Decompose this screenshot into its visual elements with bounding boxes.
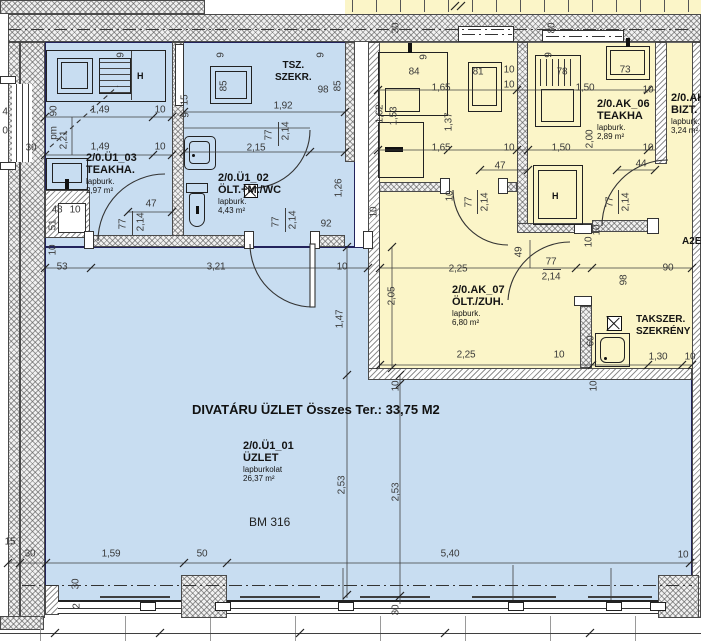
dim-label: 2,14 — [542, 272, 561, 283]
dim-label: 30 — [391, 23, 402, 34]
dim-label: 10 — [504, 80, 515, 91]
column-right — [658, 575, 699, 618]
wall-corner-piece — [45, 585, 59, 615]
dim-label: 10 — [70, 205, 81, 216]
dim-label: 10 — [48, 245, 59, 256]
fixture-tick — [408, 43, 412, 53]
dim-label: 60 — [586, 336, 597, 347]
h-mark: H — [552, 191, 559, 201]
door-jamb — [84, 231, 94, 249]
dim-label: 10 — [643, 143, 654, 154]
dim-label: 47 — [146, 199, 157, 210]
dim-label: 9 — [216, 52, 227, 57]
dim-label: 2,21 — [59, 131, 70, 150]
room-label-wc: 2/0.Ü1_02ÖLT.+M./WC lapburk.4,43 m² — [218, 172, 281, 215]
wall-top-left-strip — [0, 0, 205, 14]
dim-label: 10 — [504, 65, 515, 76]
wall-staff-mid — [517, 42, 528, 233]
dim-label: 50 — [197, 549, 208, 560]
fixture-tick — [626, 38, 630, 47]
blind-segment — [360, 596, 430, 598]
dim-label: 77 — [546, 257, 557, 268]
dim-label: 9 — [181, 112, 192, 117]
dim-label: 85 — [333, 81, 344, 92]
wall-bottom-left-sill — [0, 616, 44, 630]
door-jamb — [574, 224, 592, 234]
dim-label: 15 — [180, 95, 191, 106]
dim-label: 49 — [514, 247, 525, 258]
fraction-bar — [477, 190, 478, 214]
dim-label: 10 — [504, 143, 515, 154]
dim-label: 1,30 — [649, 352, 668, 363]
fraction-bar — [618, 190, 619, 214]
bm-label: BM 316 — [249, 515, 290, 529]
dim-label: 2,14 — [136, 213, 147, 232]
dim-label: 1,59 — [102, 549, 121, 560]
bench — [378, 122, 424, 178]
dim-label: 77 — [271, 217, 282, 228]
dim-label: 2,14 — [480, 193, 491, 212]
dim-label: 1,26 — [334, 179, 345, 198]
takszer-label: TAKSZER.SZEKRÉNY — [636, 314, 690, 338]
wall-ak06-bizt — [655, 42, 667, 164]
dim-label: 2,14 — [288, 211, 299, 230]
dim-label: 10 — [643, 85, 654, 96]
drainer-hatch — [99, 58, 131, 94]
dim-label: 98 — [619, 275, 630, 286]
door-jamb — [574, 296, 592, 306]
fraction-bar — [278, 122, 279, 146]
top-strip-ticks — [352, 0, 690, 12]
dim-label: 1,92 — [274, 101, 293, 112]
dim-label: 10 — [685, 352, 696, 363]
fixture-number: 84 — [409, 67, 420, 78]
dim-label: 30 — [71, 579, 82, 590]
wardrobe — [210, 66, 252, 104]
dim-label: 44 — [636, 159, 647, 170]
blind-segment — [240, 596, 320, 598]
dim-label: 2,25 — [457, 350, 476, 361]
wall-shop-north-a — [88, 235, 250, 247]
window-glazing-line — [22, 84, 23, 162]
fixture-number: 81 — [473, 67, 484, 78]
pavement-ticks — [40, 616, 695, 641]
dim-label: 2,53 — [337, 476, 348, 495]
window-mullion — [215, 602, 231, 611]
room-label-bizt: 2/0.AKBIZT. lapburk.3,24 m² — [671, 92, 701, 135]
dim-label: 9 — [116, 52, 127, 57]
floor-drain-icon — [607, 316, 622, 331]
room-label-ak07: 2/0.AK_07ÖLT./ZUH. lapburk.6,80 m² — [452, 284, 505, 327]
dim-label: 80 — [547, 23, 558, 34]
dim-label: 9 — [419, 54, 430, 59]
dim-label: 85 — [219, 81, 230, 92]
dim-label: 5,40 — [441, 549, 460, 560]
dim-label: 10 — [369, 207, 380, 218]
door-jamb — [244, 231, 254, 249]
dim-label: 1,37 — [444, 113, 455, 132]
dim-label: 30 — [391, 605, 402, 616]
window-mullion — [650, 602, 666, 611]
dim-label: 10 — [155, 142, 166, 153]
axis-line-top — [8, 29, 698, 30]
dim-label: 1,62 — [375, 105, 386, 124]
dim-label: 10 — [445, 191, 456, 202]
washbasin — [595, 333, 630, 367]
floor-plan: 2/0.Ü1_03TEAKHA. lapburk.2,97 m² 2/0.Ü1_… — [0, 0, 701, 641]
a2e-label: A2E — [682, 236, 701, 248]
window-sill — [0, 76, 16, 84]
door-jamb — [363, 231, 373, 249]
room-label-uzlet: 2/0.Ü1_01ÜZLET lapburkolat26,37 m² — [243, 440, 294, 483]
dim-label: 90 — [663, 263, 674, 274]
dim-label: 30 — [26, 143, 37, 154]
dim-label: 98 — [318, 85, 329, 96]
dim-label: 1,47 — [335, 310, 346, 329]
dim-label: 3,21 — [207, 262, 226, 273]
dim-label: 2,05 — [387, 287, 398, 306]
room-label-ak06: 2/0.AK_06TEAKHA lapburk.2,89 m² — [597, 98, 650, 141]
fraction-bar — [285, 208, 286, 232]
dim-label: 30 — [25, 549, 36, 560]
toilet-bowl — [189, 193, 205, 227]
dim-label: 9 — [316, 52, 327, 57]
dim-label: 77 — [118, 219, 129, 230]
kitchen-counter — [46, 50, 166, 102]
dim-label: 77 — [464, 197, 475, 208]
door-jamb — [498, 178, 508, 194]
dim-label: 1,49 — [91, 105, 110, 116]
wall-wc-east — [345, 42, 355, 162]
dim-label: 77 — [264, 130, 275, 141]
dim-label: 1,65 — [432, 143, 451, 154]
dim-label: 15 — [5, 537, 16, 548]
dim-label: 2,25 — [449, 264, 468, 275]
toilet — [186, 183, 208, 193]
dim-label: 10 — [589, 381, 600, 392]
hand-sink — [46, 158, 88, 190]
dim-label: 2,53 — [391, 483, 402, 502]
dim-label: 1,65 — [432, 83, 451, 94]
wall-shop-north-b — [317, 235, 345, 247]
dim-label: 2 — [72, 603, 83, 608]
fraction-bar — [543, 269, 561, 270]
wall-locker-south — [368, 182, 448, 192]
dim-label: 10 — [678, 550, 689, 561]
dim-label: 1,50 — [552, 143, 571, 154]
dim-label: 10 — [584, 237, 595, 248]
blind-segment — [588, 596, 652, 598]
dim-label: 0 — [2, 126, 7, 137]
dim-label: 48 — [52, 205, 63, 216]
dim-label: 10 — [155, 105, 166, 116]
dim-label: 2,00 — [585, 130, 596, 149]
ground-line — [0, 633, 701, 634]
window-sill — [0, 162, 16, 170]
window-glazing-line — [16, 84, 17, 162]
dim-label: 2,14 — [621, 193, 632, 212]
door-jamb — [647, 218, 659, 234]
window-mullion — [338, 602, 354, 611]
sink-basin — [57, 58, 93, 94]
window-mullion — [606, 602, 622, 611]
window-mullion — [140, 602, 156, 611]
axis-line-shop — [22, 585, 692, 586]
dim-label: 47 — [495, 161, 506, 172]
fraction-bar — [132, 211, 133, 235]
dim-label: 51 — [48, 220, 59, 231]
dim-label: 10 — [391, 381, 402, 392]
column-mid — [181, 575, 227, 618]
dim-label: 10 — [337, 262, 348, 273]
wall-staff-south — [368, 368, 692, 380]
dim-label: 92 — [321, 219, 332, 230]
blind-segment — [472, 596, 556, 598]
dim-label: 1,49 — [91, 142, 110, 153]
dim-label: 1,53 — [389, 107, 400, 126]
dim-label: 53 — [57, 262, 68, 273]
dim-label: 1,50 — [576, 83, 595, 94]
dim-label: 77 — [605, 197, 616, 208]
window-mullion — [508, 602, 524, 611]
h-mark: H — [137, 71, 144, 81]
dim-label: 9 — [544, 52, 555, 57]
main-title: DIVATÁRU ÜZLET Összes Ter.: 33,75 M2 — [192, 402, 440, 417]
blind-segment — [100, 596, 170, 598]
dim-label: 2,14 — [281, 122, 292, 141]
door-jamb — [310, 231, 320, 249]
dim-label: 90 — [49, 106, 60, 117]
room-label-teakha3: 2/0.Ü1_03TEAKHA. lapburk.2,97 m² — [86, 152, 137, 195]
shower-tray — [184, 136, 216, 170]
fixture-number: 73 — [620, 65, 631, 76]
dim-label: 10 — [592, 225, 603, 236]
dim-label: 4 — [2, 107, 7, 118]
fixture-number: 78 — [557, 67, 568, 78]
tsz-szekr-label: TSZ.SZEKR. — [275, 60, 312, 84]
dim-label: 2,15 — [247, 143, 266, 154]
dim-label: 10 — [554, 350, 565, 361]
